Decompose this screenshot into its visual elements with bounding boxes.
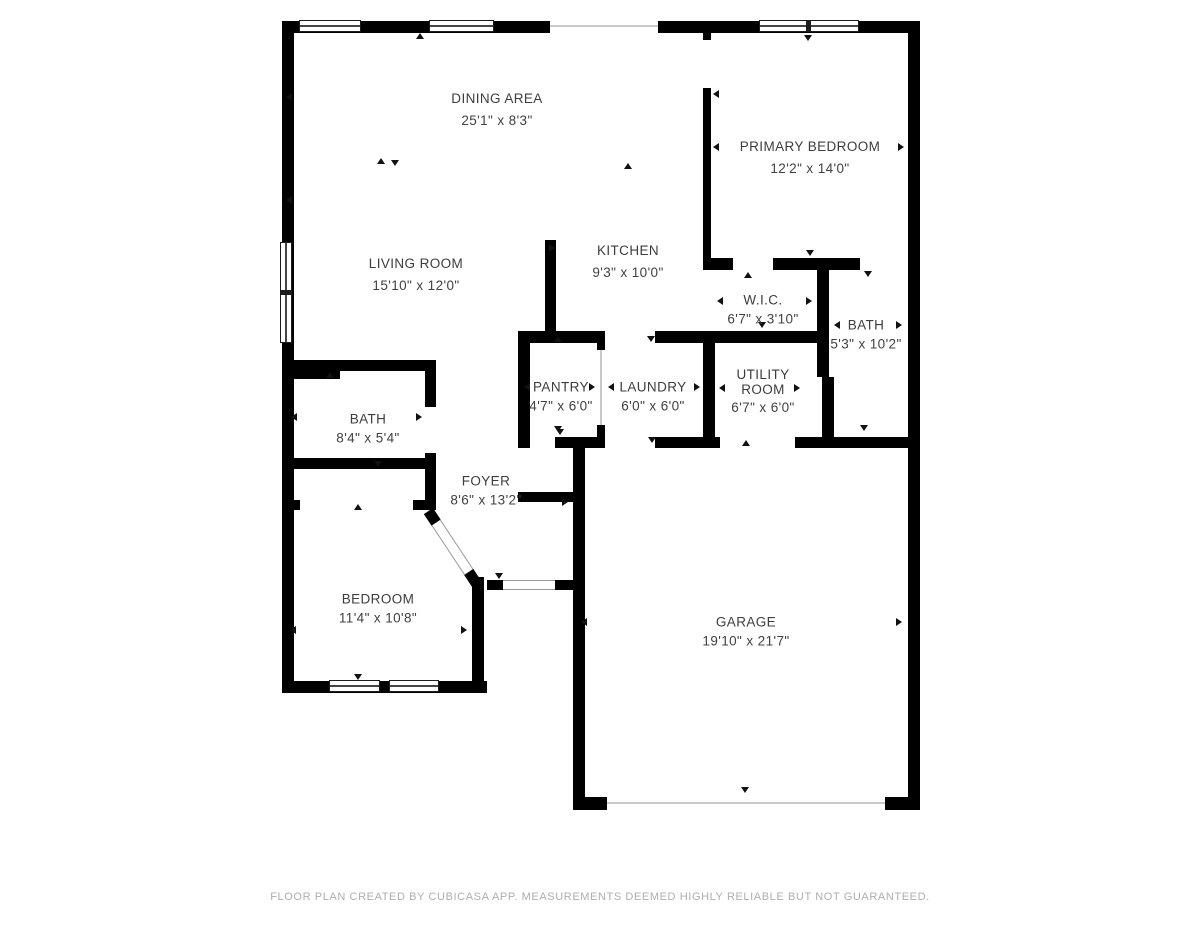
room-label-foyer: FOYER 8'6" x 13'2" (450, 474, 521, 509)
wall-segment (885, 797, 920, 810)
wall-segment (655, 331, 703, 343)
measurement-marker (562, 498, 568, 506)
measurement-marker (694, 383, 700, 391)
opening-line (550, 25, 658, 27)
measurement-marker (744, 272, 752, 278)
room-dimensions: 15'10" x 12'0" (369, 278, 463, 294)
garage-door-line (607, 802, 885, 804)
room-label-wic: W.I.C. 6'7" x 3'10" (727, 293, 798, 328)
room-name: BEDROOM (342, 592, 415, 607)
room-dimensions: 9'3" x 10'0" (592, 265, 663, 281)
room-label-pantry: PANTRY 4'7" x 6'0" (529, 380, 592, 415)
measurement-marker (898, 143, 904, 151)
room-name: PRIMARY BEDROOM (740, 139, 881, 154)
room-label-utility-room: UTILITY ROOM 6'7" x 6'0" (718, 367, 808, 415)
wall-segment (817, 264, 829, 377)
wall-segment (597, 331, 605, 350)
measurement-marker (806, 250, 814, 256)
room-label-laundry: LAUNDRY 6'0" x 6'0" (619, 380, 686, 415)
wall-segment (655, 437, 720, 448)
measurement-marker (291, 413, 297, 421)
room-dimensions: 6'7" x 6'0" (718, 400, 808, 415)
wall-segment (472, 577, 484, 693)
front-door-opening (503, 580, 555, 590)
measurement-marker (860, 425, 868, 431)
measurement-marker (391, 160, 399, 166)
window (329, 680, 380, 692)
wall-segment (795, 437, 920, 448)
wall-segment (908, 21, 920, 810)
room-name: LAUNDRY (619, 380, 686, 395)
measurement-marker (648, 437, 656, 443)
room-label-bath-left: BATH 8'4" x 5'4" (336, 412, 399, 447)
measurement-marker (377, 158, 385, 164)
measurement-marker (416, 413, 422, 421)
measurement-marker (554, 336, 562, 342)
wall-segment (822, 377, 834, 437)
opening-line (600, 350, 602, 425)
room-dimensions: 19'10" x 21'7" (702, 634, 789, 650)
room-name: BATH (350, 412, 387, 427)
room-name: GARAGE (716, 615, 776, 630)
wall-segment (703, 331, 817, 343)
room-name: W.I.C. (743, 293, 782, 308)
door-leaf (432, 520, 474, 575)
measurement-marker (717, 297, 723, 305)
room-label-bedroom: BEDROOM 11'4" x 10'8" (339, 592, 417, 627)
floor-plan-canvas: DINING AREA 25'1" x 8'3" PRIMARY BEDROOM… (0, 0, 1200, 927)
window (429, 20, 494, 32)
measurement-marker (290, 626, 296, 634)
window-mullion (280, 290, 292, 295)
measurement-marker (713, 143, 719, 151)
room-dimensions: 6'7" x 3'10" (727, 312, 798, 328)
measurement-marker (804, 35, 812, 41)
room-name: BATH (848, 318, 885, 333)
measurement-marker (581, 618, 587, 626)
measurement-marker (624, 163, 632, 169)
room-name: LIVING ROOM (369, 256, 463, 271)
measurement-marker (896, 618, 902, 626)
room-dimensions: 6'0" x 6'0" (619, 399, 686, 415)
wall-segment (545, 240, 556, 331)
wall-segment (703, 258, 733, 270)
measurement-marker (416, 33, 424, 39)
room-name: FOYER (462, 474, 511, 489)
wall-segment (703, 21, 711, 40)
room-name: KITCHEN (597, 243, 659, 258)
room-name: DINING AREA (451, 91, 542, 106)
measurement-marker (556, 429, 564, 435)
measurement-marker (864, 271, 872, 277)
measurement-marker (742, 440, 750, 446)
measurement-marker (326, 372, 334, 378)
measurement-marker (354, 674, 362, 680)
measurement-marker (461, 626, 467, 634)
room-dimensions: 4'7" x 6'0" (529, 399, 592, 415)
wall-segment (703, 331, 715, 448)
measurement-marker (374, 461, 382, 467)
measurement-marker (647, 336, 655, 342)
measurement-marker (806, 297, 812, 305)
measurement-marker (741, 787, 749, 793)
measurement-marker (495, 573, 503, 579)
wall-segment (555, 580, 573, 590)
window (389, 680, 439, 692)
room-label-living-room: LIVING ROOM 15'10" x 12'0" (369, 256, 463, 294)
room-label-dining-area: DINING AREA 25'1" x 8'3" (451, 91, 542, 129)
bedroom-door-diagonal (424, 508, 481, 587)
wall-segment (282, 500, 300, 510)
measurement-marker (286, 93, 292, 101)
window (299, 20, 361, 32)
wall-segment (282, 21, 294, 693)
wall-segment (487, 580, 503, 590)
measurement-marker (608, 383, 614, 391)
room-label-kitchen: KITCHEN 9'3" x 10'0" (592, 243, 663, 281)
room-label-primary-bedroom: PRIMARY BEDROOM 12'2" x 14'0" (740, 139, 881, 177)
wall-segment (555, 437, 605, 448)
measurement-marker (549, 244, 555, 252)
room-dimensions: 8'4" x 5'4" (336, 431, 399, 447)
room-dimensions: 12'2" x 14'0" (740, 161, 881, 177)
room-label-garage: GARAGE 19'10" x 21'7" (702, 615, 789, 650)
measurement-marker (354, 504, 362, 510)
room-name: PANTRY (533, 380, 589, 395)
wall-segment (282, 458, 433, 469)
measurement-marker (713, 90, 719, 98)
room-dimensions: 11'4" x 10'8" (339, 611, 417, 627)
room-dimensions: 8'6" x 13'2" (450, 493, 521, 509)
room-name: UTILITY ROOM (736, 367, 789, 397)
measurement-marker (286, 196, 292, 204)
footer-disclaimer: FLOOR PLAN CREATED BY CUBICASA APP. MEAS… (270, 891, 930, 903)
wall-segment (425, 360, 436, 407)
room-label-bath-right: BATH 5'3" x 10'2" (830, 318, 901, 353)
window-mullion (806, 20, 811, 32)
wall-segment (282, 681, 487, 693)
room-dimensions: 5'3" x 10'2" (830, 337, 901, 353)
wall-segment (703, 88, 711, 270)
room-dimensions: 25'1" x 8'3" (451, 113, 542, 129)
